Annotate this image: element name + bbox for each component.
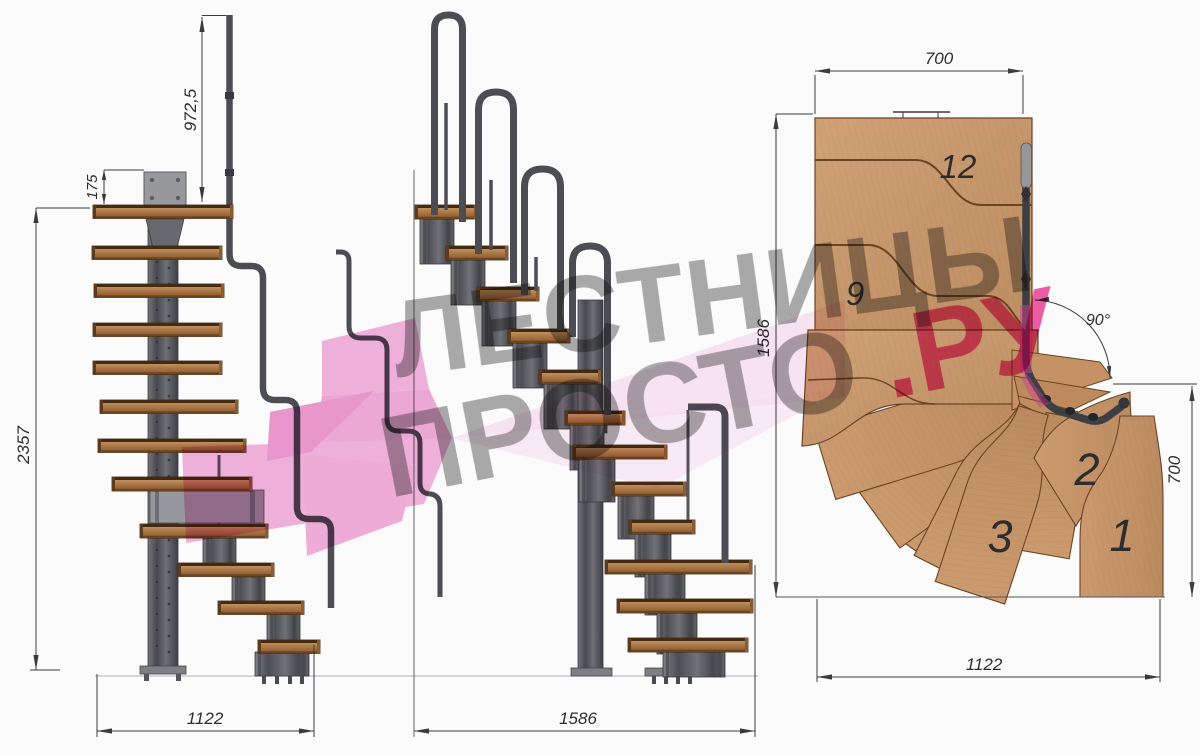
svg-text:1122: 1122 — [966, 655, 1003, 674]
svg-text:1586: 1586 — [559, 709, 597, 728]
svg-text:700: 700 — [1165, 455, 1184, 484]
svg-text:90°: 90° — [1086, 312, 1111, 329]
svg-text:1: 1 — [1109, 510, 1134, 561]
svg-text:175: 175 — [84, 174, 101, 200]
svg-text:2357: 2357 — [14, 426, 33, 465]
svg-text:972,5: 972,5 — [181, 88, 200, 131]
svg-text:3: 3 — [987, 511, 1012, 562]
svg-text:12: 12 — [940, 148, 977, 185]
svg-text:2: 2 — [1073, 444, 1099, 495]
svg-text:700: 700 — [925, 49, 954, 68]
svg-text:1122: 1122 — [187, 709, 224, 728]
